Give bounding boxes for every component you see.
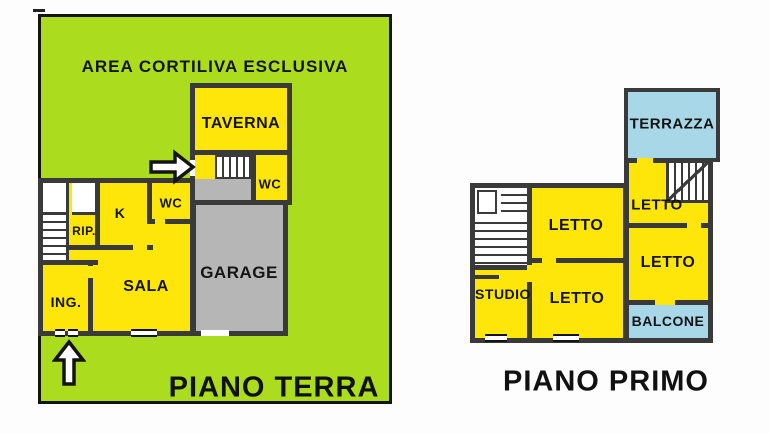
room-letto-top-right-label: LETTO <box>631 197 682 214</box>
room-letto-right-label: LETTO <box>641 254 696 272</box>
wall-ing-sala <box>88 278 93 331</box>
window-mark <box>131 329 157 337</box>
room-taverna-label: TAVERNA <box>202 115 280 133</box>
room-terrazza-label: TERRAZZA <box>630 116 715 133</box>
wall-letto-divider-b <box>556 258 623 263</box>
room-garage <box>196 183 283 331</box>
wall-letto1-bottom-a <box>629 223 687 228</box>
wall-wc-bottom <box>147 219 190 224</box>
closet-cell-b <box>72 183 95 215</box>
room-sala-label: SALA <box>123 278 169 296</box>
first-floor-stairs-lower <box>475 216 527 265</box>
front-entrance-arrow-icon <box>52 339 86 387</box>
room-terrazza: TERRAZZA <box>624 88 720 162</box>
first-floor-left-block: STUDIO LETTO LETTO <box>470 183 628 343</box>
wall-corridor-studio <box>475 275 499 279</box>
room-wc-taverna-label: WC <box>259 177 282 192</box>
wall-letto1-bottom-b <box>701 223 708 228</box>
floorplan-canvas: AREA CORTILIVA ESCLUSIVA PIANO TERRA GAR… <box>0 0 769 433</box>
room-garage-label: GARAGE <box>200 263 278 283</box>
door-opening <box>133 245 147 250</box>
side-entrance-arrow-icon <box>148 149 196 185</box>
wall-corridor-stub <box>88 262 93 266</box>
wall-letto-divider-a <box>532 258 542 263</box>
room-kitchen-label: K <box>115 205 126 221</box>
window-mark <box>553 334 579 342</box>
ground-floor-stairs <box>43 215 69 260</box>
garage-door-mark <box>201 330 229 336</box>
room-balcone-label: BALCONE <box>632 313 705 329</box>
room-letto-top-label: LETTO <box>549 217 604 235</box>
ground-floor-title: PIANO TERRA <box>169 372 380 405</box>
first-floor-stairs-upper <box>501 188 527 216</box>
scan-mark <box>33 9 45 12</box>
wall-stairs-bottom <box>475 265 527 270</box>
courtyard-label: AREA CORTILIVA ESCLUSIVA <box>41 57 389 77</box>
stairs-landing-cell <box>477 190 497 214</box>
room-studio-label: STUDIO <box>475 286 531 302</box>
first-floor-right-wing: LETTO LETTO BALCONE <box>624 158 713 343</box>
door-opening <box>155 219 165 224</box>
wall-k-wc <box>147 183 152 224</box>
taverna-stairs <box>215 155 251 179</box>
room-rip-label: RIP. <box>72 224 96 238</box>
entrance-door-mark <box>55 329 65 337</box>
garage-under-taverna <box>195 179 251 200</box>
room-letto-bottom-label: LETTO <box>550 290 605 308</box>
entrance-door-mark <box>68 329 78 337</box>
wall-rip-right <box>95 183 100 250</box>
door-opening <box>637 158 653 163</box>
room-ing-label: ING. <box>51 294 82 310</box>
taverna-block: TAVERNA WC <box>190 83 292 205</box>
first-floor-title: PIANO PRIMO <box>503 366 709 399</box>
window-mark <box>485 334 507 342</box>
wall-vertical-upper <box>527 188 532 265</box>
room-wc-label: WC <box>160 196 183 211</box>
closet-cell-a <box>43 183 69 215</box>
